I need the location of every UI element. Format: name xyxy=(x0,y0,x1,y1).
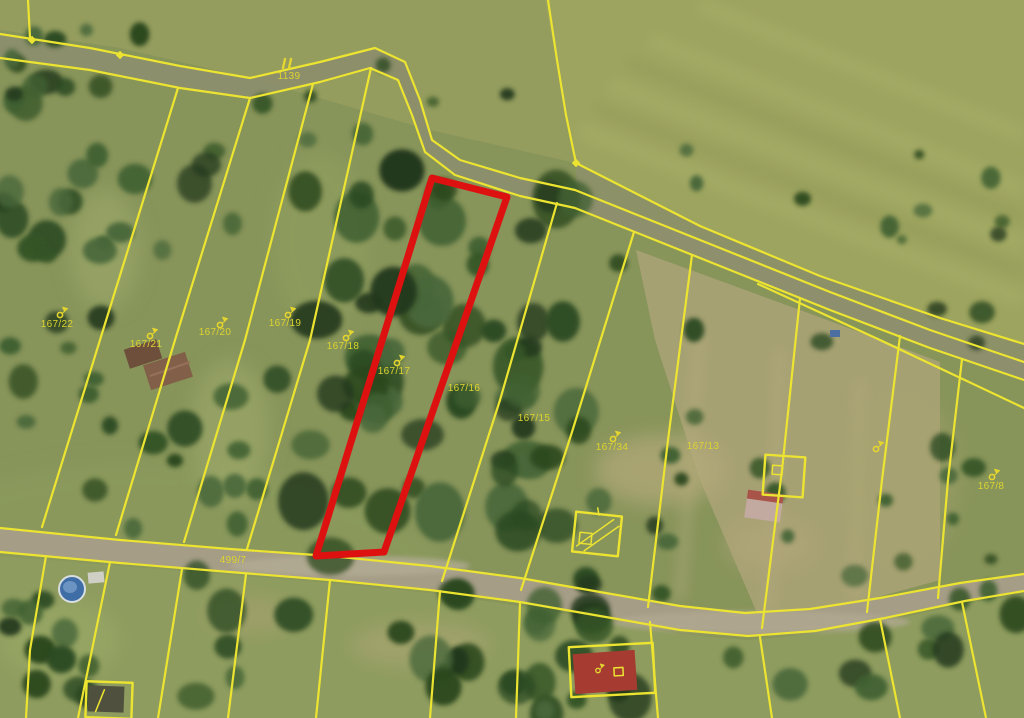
parcel-label: 167/19 xyxy=(269,318,302,329)
dark-building xyxy=(88,685,125,712)
parcel-label: 167/13 xyxy=(687,441,720,452)
parcel-label: 499/7 xyxy=(220,555,247,566)
parcel-label: 167/22 xyxy=(41,319,74,330)
parcel-label: 167/18 xyxy=(327,341,360,352)
cadastral-map-view[interactable]: 1139 167/22 167/21 167/20 167/19 167/18 … xyxy=(0,0,1024,718)
parcel-label: 167/21 xyxy=(130,339,163,350)
parcel-label: 167/16 xyxy=(448,383,481,394)
parcel-label: 167/34 xyxy=(596,442,629,453)
map-svg: 1139 167/22 167/21 167/20 167/19 167/18 … xyxy=(0,0,1024,718)
white-shed xyxy=(88,571,105,583)
parcel-label: 167/8 xyxy=(978,481,1005,492)
red-roof-building xyxy=(573,650,638,694)
blue-object xyxy=(830,330,840,337)
parcel-label: 167/20 xyxy=(199,327,232,338)
parcel-label-highlighted: 167/17 xyxy=(378,366,411,377)
parcel-label: 167/15 xyxy=(518,413,551,424)
parcel-label: 1139 xyxy=(278,71,301,82)
